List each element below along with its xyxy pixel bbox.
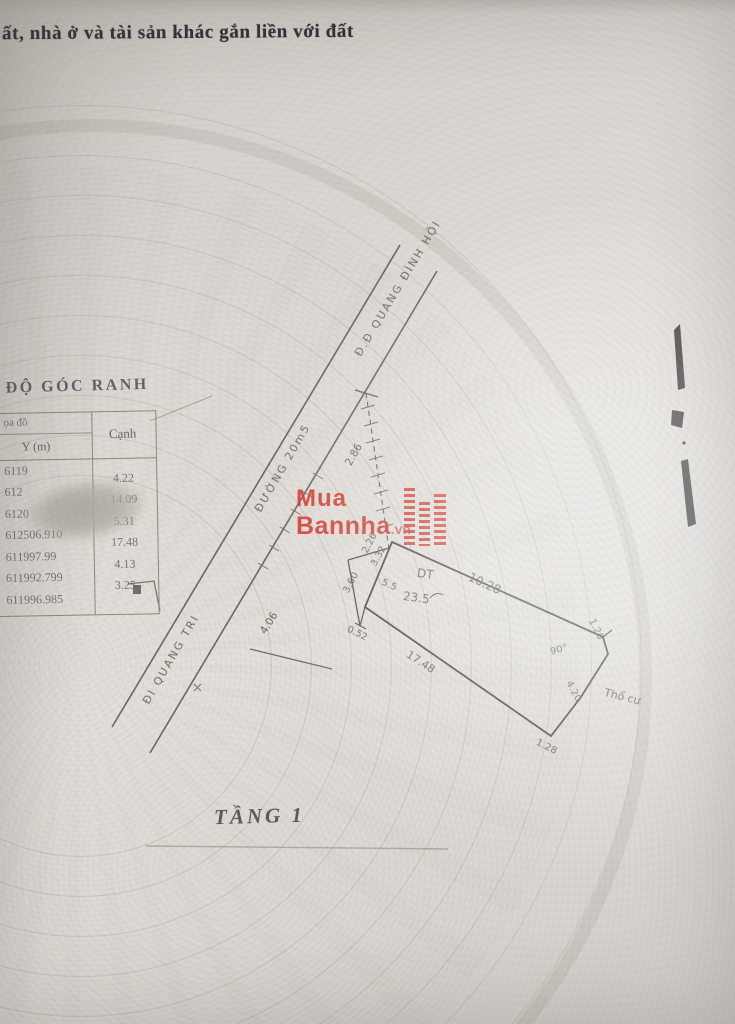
edge-cell: 3.25	[94, 577, 156, 593]
area-prefix-label: DT	[416, 566, 434, 582]
watermark-building-icon	[404, 484, 448, 546]
table-header-row: ọa đồ Y (m) Cạnh	[0, 411, 156, 461]
watermark-word1: Mua	[296, 487, 411, 511]
floor-label: TẦNG 1	[214, 803, 306, 830]
coord-cell: 6119	[4, 464, 28, 479]
watermark-text: Mua Bannha.vn	[296, 487, 411, 539]
north-arrow-icon	[671, 324, 696, 527]
watermark-word2: Bannha.vn	[296, 514, 411, 539]
header-canh: Cạnh	[91, 425, 153, 442]
coord-cell: 612	[4, 485, 22, 500]
coord-cell: 611996.985	[6, 592, 63, 608]
header-coord-partial: ọa đồ	[3, 417, 27, 429]
coord-cell: 611997.99	[6, 549, 57, 565]
scanned-certificate-page: ất, nhà ở và tài sản khác gắn liền với đ…	[0, 0, 735, 1024]
edge-cell: 4.13	[94, 556, 156, 572]
header-y-m: Y (m)	[22, 439, 51, 454]
coord-cell: 611992.799	[6, 570, 63, 586]
